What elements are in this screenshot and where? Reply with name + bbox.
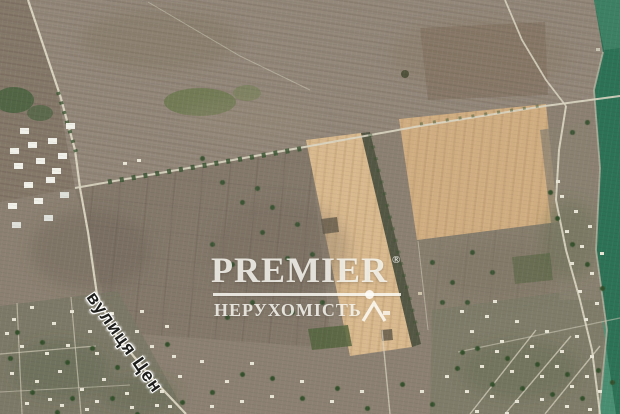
terrain-shapes bbox=[0, 0, 620, 414]
watermark-divider-dot bbox=[365, 290, 374, 299]
house-roof-icon bbox=[358, 299, 394, 323]
registered-trademark-icon: ® bbox=[392, 254, 400, 266]
watermark-brand: PREMIER bbox=[211, 252, 388, 288]
industrial-buildings bbox=[0, 0, 9, 6]
watermark: PREMIER ® НЕРУХОМІСТЬ bbox=[211, 252, 416, 324]
satellite-map[interactable]: вулиця Цен PREMIER ® НЕРУХОМІСТЬ bbox=[0, 0, 620, 414]
watermark-tagline: НЕРУХОМІСТЬ bbox=[214, 300, 362, 321]
